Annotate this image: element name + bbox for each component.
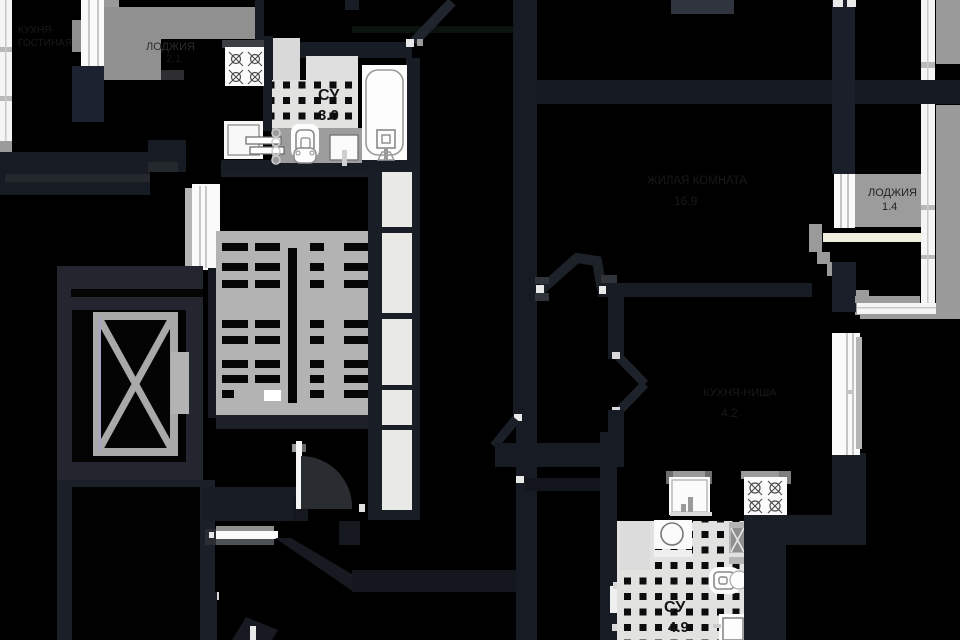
svg-text:ЛОДЖИЯ: ЛОДЖИЯ xyxy=(868,187,917,199)
svg-text:1.4: 1.4 xyxy=(882,201,897,213)
svg-text:ГОСТИНАЯ: ГОСТИНАЯ xyxy=(18,38,72,49)
svg-text:ЖИЛАЯ КОМНАТА: ЖИЛАЯ КОМНАТА xyxy=(647,175,747,187)
svg-text:16.9: 16.9 xyxy=(674,194,698,208)
svg-text:СУ: СУ xyxy=(664,599,686,616)
svg-text:2.1: 2.1 xyxy=(166,53,181,65)
svg-text:3.0: 3.0 xyxy=(318,107,339,124)
svg-text:СУ: СУ xyxy=(318,87,340,104)
svg-text:КУХНЯ-: КУХНЯ- xyxy=(18,25,55,36)
svg-text:КУХНЯ-НИША: КУХНЯ-НИША xyxy=(703,387,777,399)
svg-text:ЛОДЖИЯ: ЛОДЖИЯ xyxy=(146,41,195,53)
svg-text:4.2: 4.2 xyxy=(721,406,738,420)
svg-text:4.9: 4.9 xyxy=(668,619,689,636)
